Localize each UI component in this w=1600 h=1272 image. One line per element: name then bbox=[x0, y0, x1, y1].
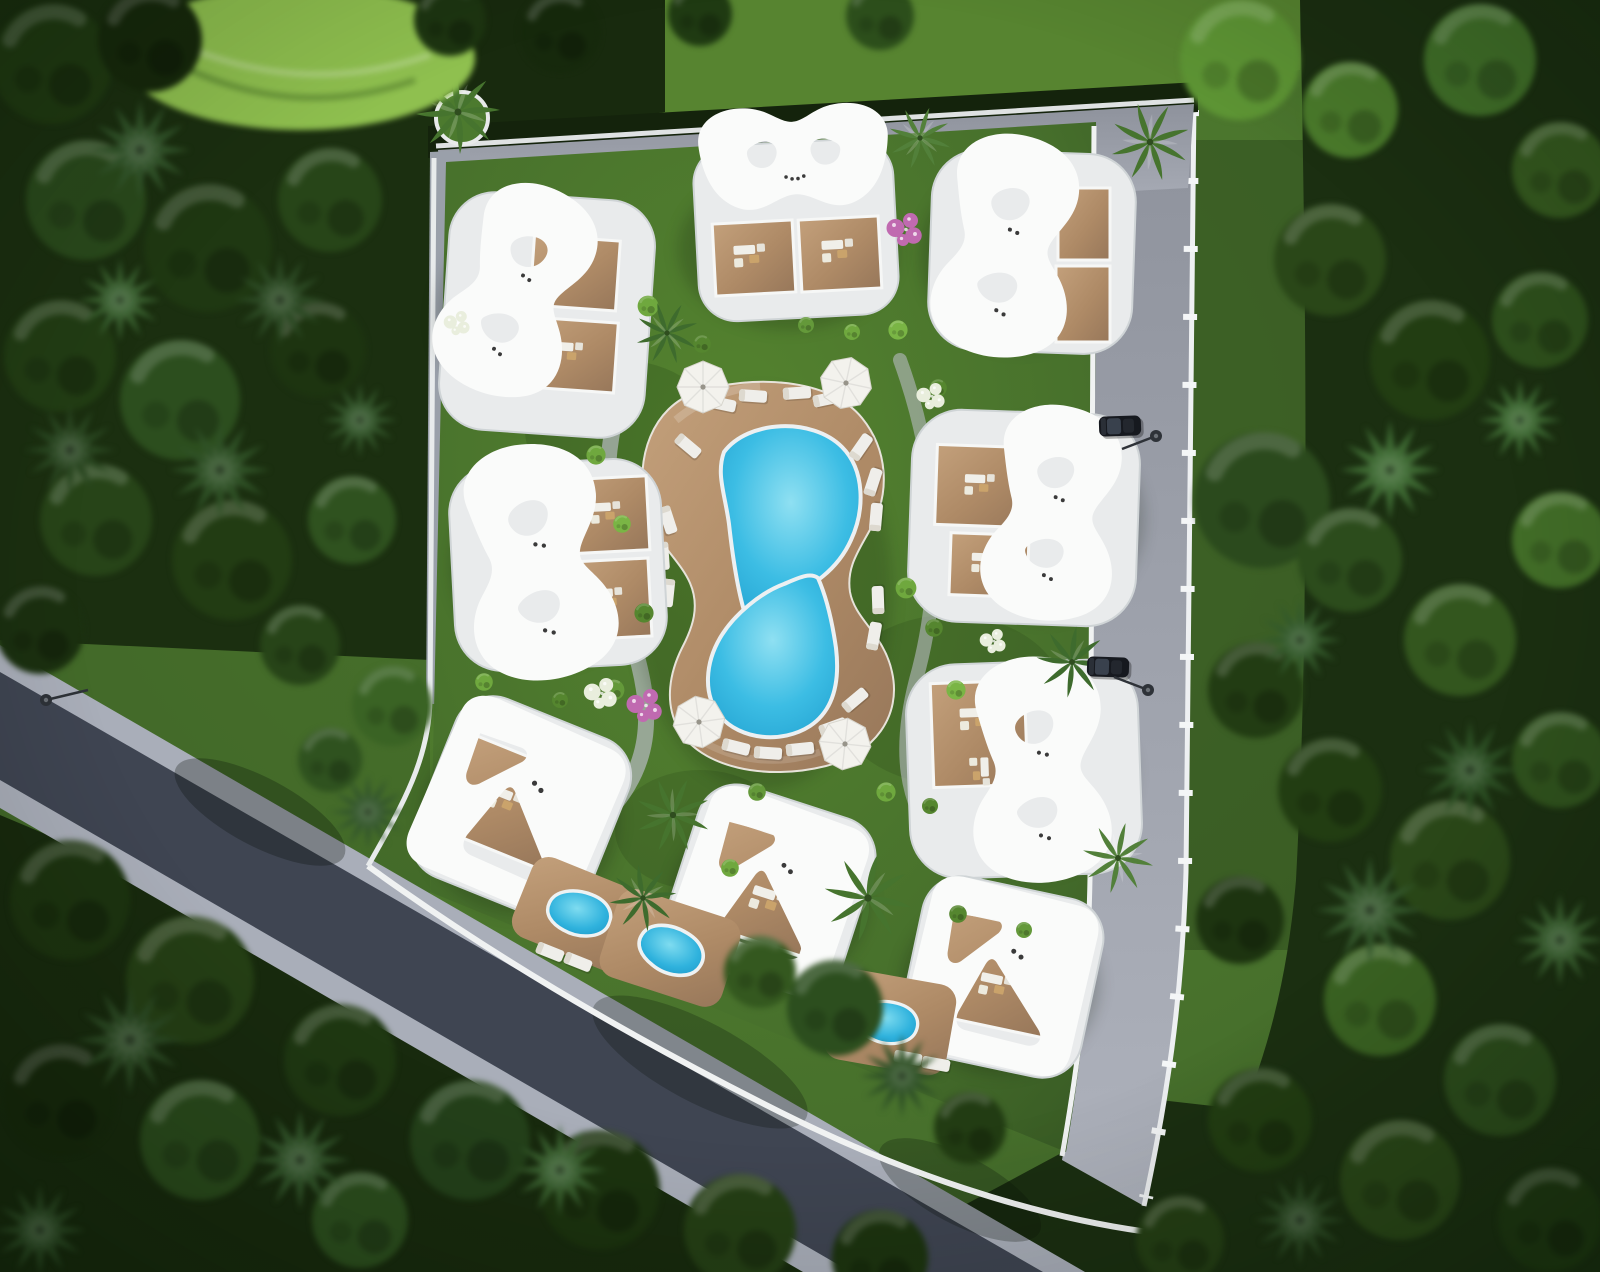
aerial-site-render bbox=[0, 0, 1600, 1272]
vignette-overlay bbox=[0, 0, 1600, 1272]
